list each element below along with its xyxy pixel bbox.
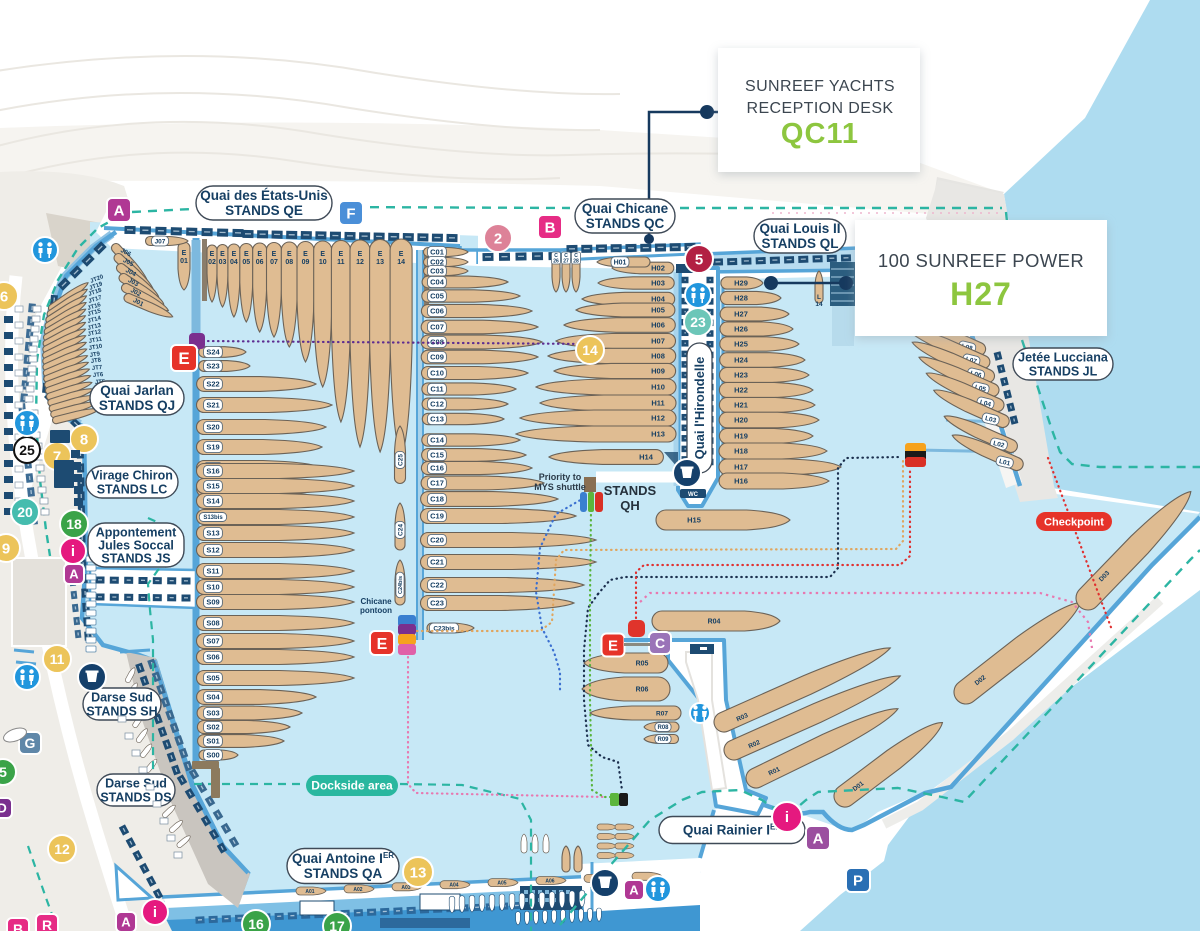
svg-text:A: A (69, 567, 79, 582)
svg-text:S07: S07 (206, 637, 219, 646)
svg-text:08: 08 (285, 259, 293, 266)
svg-text:06: 06 (256, 259, 264, 266)
svg-text:14: 14 (815, 301, 823, 308)
svg-text:A: A (813, 830, 824, 847)
svg-text:S08: S08 (206, 619, 219, 628)
svg-text:14: 14 (397, 259, 405, 266)
svg-text:Quai l'Hirondelle: Quai l'Hirondelle (692, 357, 707, 460)
svg-text:S00: S00 (206, 751, 219, 760)
svg-text:26: 26 (553, 259, 559, 265)
svg-text:Quai Antoine IER: Quai Antoine IER (292, 851, 394, 866)
svg-text:S16: S16 (206, 467, 219, 476)
svg-text:STANDS QC: STANDS QC (586, 216, 665, 231)
svg-text:H19: H19 (734, 432, 748, 441)
svg-text:Quai Chicane: Quai Chicane (582, 201, 669, 216)
svg-text:E: E (358, 251, 363, 258)
svg-text:S20: S20 (206, 423, 219, 432)
svg-text:i: i (785, 809, 789, 826)
svg-text:H06: H06 (651, 321, 665, 330)
svg-text:C20: C20 (430, 536, 444, 545)
svg-text:9: 9 (2, 540, 10, 557)
svg-text:Quai Rainier IER: Quai Rainier IER (683, 823, 781, 838)
svg-text:R08: R08 (657, 725, 669, 731)
svg-text:E: E (320, 251, 325, 258)
svg-text:S21: S21 (206, 401, 219, 410)
svg-text:C04: C04 (430, 278, 445, 287)
svg-text:100 SUNREEF POWER: 100 SUNREEF POWER (878, 250, 1084, 271)
svg-text:MYS shuttle: MYS shuttle (534, 482, 586, 492)
svg-text:SUNREEF YACHTS: SUNREEF YACHTS (745, 78, 895, 95)
svg-text:S09: S09 (206, 598, 219, 607)
svg-text:C24: C24 (397, 524, 404, 536)
svg-text:Virage Chiron: Virage Chiron (91, 468, 173, 482)
svg-text:R06: R06 (636, 687, 649, 694)
svg-text:JT6: JT6 (93, 372, 104, 379)
svg-text:C12: C12 (430, 400, 444, 409)
svg-text:H22: H22 (734, 386, 748, 395)
svg-text:pontoon: pontoon (360, 606, 392, 615)
svg-text:C16: C16 (430, 464, 444, 473)
svg-text:18: 18 (66, 516, 82, 532)
svg-text:S01: S01 (206, 737, 219, 746)
svg-text:A05: A05 (497, 881, 506, 887)
svg-text:C11: C11 (430, 385, 443, 394)
svg-text:E: E (182, 250, 187, 257)
svg-text:C06: C06 (430, 307, 444, 316)
svg-text:A02: A02 (353, 887, 362, 893)
svg-text:STANDS JL: STANDS JL (1029, 364, 1098, 378)
svg-text:R04: R04 (708, 619, 721, 626)
svg-text:H25: H25 (734, 340, 748, 349)
svg-text:C05: C05 (430, 292, 444, 301)
svg-text:S05: S05 (206, 674, 219, 683)
svg-text:Jules Soccal: Jules Soccal (98, 538, 174, 552)
svg-text:E: E (608, 637, 618, 654)
svg-text:11: 11 (337, 259, 345, 266)
svg-text:C23: C23 (430, 599, 444, 608)
svg-text:STANDS QJ: STANDS QJ (99, 398, 175, 413)
svg-text:S19: S19 (206, 443, 219, 452)
svg-text:S23: S23 (206, 362, 219, 371)
svg-text:D: D (0, 801, 7, 816)
svg-text:B: B (13, 921, 23, 931)
svg-text:E: E (339, 251, 344, 258)
svg-text:P: P (853, 872, 863, 889)
svg-text:04: 04 (230, 259, 238, 266)
svg-text:5: 5 (0, 764, 7, 780)
svg-text:A03: A03 (401, 885, 410, 891)
svg-text:12: 12 (356, 259, 364, 266)
svg-text:H17: H17 (734, 463, 748, 472)
svg-text:02: 02 (208, 259, 216, 266)
svg-text:S24: S24 (206, 348, 220, 357)
svg-text:H13: H13 (651, 430, 665, 439)
svg-text:C15: C15 (430, 451, 444, 460)
svg-text:09: 09 (302, 259, 310, 266)
svg-text:H27: H27 (950, 276, 1012, 312)
svg-text:Chicane: Chicane (360, 597, 392, 606)
svg-text:G: G (25, 735, 36, 751)
svg-text:12: 12 (54, 841, 70, 857)
svg-text:E: E (378, 251, 383, 258)
svg-text:A01: A01 (305, 889, 314, 895)
svg-text:i: i (71, 543, 75, 560)
svg-text:H04: H04 (651, 295, 666, 304)
svg-text:Quai des États-Unis: Quai des États-Unis (200, 188, 328, 203)
svg-text:14: 14 (582, 342, 598, 358)
svg-text:C22: C22 (430, 581, 444, 590)
svg-text:STANDS QA: STANDS QA (304, 866, 383, 881)
svg-text:H27: H27 (734, 310, 748, 319)
svg-text:JT7: JT7 (92, 365, 104, 372)
svg-text:STANDS QE: STANDS QE (225, 203, 303, 218)
svg-text:11: 11 (50, 651, 65, 667)
svg-text:16: 16 (248, 916, 264, 931)
svg-text:H26: H26 (734, 325, 748, 334)
svg-text:C19: C19 (430, 512, 444, 521)
svg-text:QH: QH (620, 498, 640, 513)
svg-text:S22: S22 (206, 380, 219, 389)
svg-text:E: E (377, 636, 388, 653)
svg-text:Darse Sud: Darse Sud (105, 776, 167, 790)
svg-text:S06: S06 (206, 653, 219, 662)
svg-text:23: 23 (690, 314, 706, 330)
svg-text:Jetée Lucciana: Jetée Lucciana (1018, 350, 1109, 364)
svg-text:R: R (42, 917, 52, 931)
svg-text:S12: S12 (206, 546, 219, 555)
svg-text:STANDS LC: STANDS LC (97, 482, 168, 496)
svg-text:H09: H09 (651, 367, 665, 376)
svg-text:C21: C21 (430, 558, 444, 567)
svg-text:E: E (220, 251, 225, 258)
svg-text:H24: H24 (734, 356, 749, 365)
svg-text:C: C (655, 635, 665, 651)
svg-text:5: 5 (695, 251, 703, 268)
svg-text:Checkpoint: Checkpoint (1044, 517, 1104, 529)
svg-text:8: 8 (80, 431, 88, 448)
svg-text:S13: S13 (206, 529, 219, 538)
svg-text:R09: R09 (657, 737, 669, 743)
svg-text:13: 13 (376, 259, 384, 266)
svg-text:28: 28 (573, 259, 579, 265)
svg-text:A06: A06 (545, 879, 554, 885)
svg-text:Priority to: Priority to (539, 472, 582, 482)
svg-text:10: 10 (319, 259, 327, 266)
svg-text:S03: S03 (206, 709, 219, 718)
svg-text:E: E (257, 251, 262, 258)
svg-text:Quai Jarlan: Quai Jarlan (100, 383, 174, 398)
svg-text:H29: H29 (734, 279, 748, 288)
svg-text:J07: J07 (155, 238, 166, 245)
svg-text:S11: S11 (207, 567, 220, 576)
svg-text:Appontement: Appontement (96, 525, 177, 539)
svg-text:i: i (153, 904, 157, 921)
svg-text:C03: C03 (430, 267, 444, 276)
svg-text:H15: H15 (687, 516, 701, 525)
svg-text:S10: S10 (206, 583, 219, 592)
svg-text:C07: C07 (430, 323, 444, 332)
svg-text:E: E (232, 251, 237, 258)
svg-text:H23: H23 (734, 371, 748, 380)
svg-text:H03: H03 (651, 279, 665, 288)
svg-text:H08: H08 (651, 352, 665, 361)
svg-text:C13: C13 (430, 415, 444, 424)
svg-text:RECEPTION DESK: RECEPTION DESK (747, 100, 894, 117)
svg-text:A04: A04 (449, 883, 458, 889)
svg-text:H18: H18 (734, 447, 748, 456)
svg-text:E: E (303, 251, 308, 258)
svg-text:S15: S15 (206, 482, 219, 491)
svg-text:20: 20 (17, 504, 33, 520)
svg-text:STANDS: STANDS (604, 483, 657, 498)
svg-text:H07: H07 (651, 337, 665, 346)
svg-text:C14: C14 (430, 436, 445, 445)
svg-text:H02: H02 (651, 264, 665, 273)
svg-text:A: A (114, 202, 125, 219)
svg-text:S02: S02 (206, 723, 219, 732)
svg-text:H20: H20 (734, 416, 748, 425)
svg-text:03: 03 (219, 259, 227, 266)
svg-text:C24bis: C24bis (398, 576, 404, 594)
svg-text:C09: C09 (430, 353, 444, 362)
svg-text:STANDS JS: STANDS JS (101, 551, 170, 565)
svg-text:S04: S04 (206, 693, 220, 702)
svg-text:S14: S14 (206, 497, 220, 506)
svg-text:H16: H16 (734, 477, 748, 486)
svg-text:E: E (272, 251, 277, 258)
svg-text:H10: H10 (651, 383, 665, 392)
svg-text:R05: R05 (636, 661, 649, 668)
svg-text:27: 27 (563, 259, 569, 265)
svg-text:E: E (287, 251, 292, 258)
svg-text:Darse Sud: Darse Sud (91, 690, 153, 704)
svg-text:E: E (244, 251, 249, 258)
svg-text:C18: C18 (430, 495, 444, 504)
svg-text:25: 25 (19, 442, 35, 458)
svg-text:H21: H21 (734, 401, 748, 410)
svg-text:E: E (178, 349, 189, 368)
svg-text:H11: H11 (651, 399, 664, 408)
svg-text:6: 6 (0, 288, 8, 305)
svg-text:C17: C17 (430, 479, 444, 488)
svg-text:17: 17 (329, 918, 345, 931)
svg-text:A: A (121, 915, 131, 930)
svg-text:E: E (399, 251, 404, 258)
svg-text:QC11: QC11 (781, 118, 859, 150)
svg-text:C10: C10 (430, 369, 444, 378)
svg-text:B: B (545, 219, 556, 236)
svg-text:C25: C25 (397, 454, 404, 466)
svg-text:13: 13 (410, 864, 427, 881)
svg-text:C01: C01 (430, 248, 444, 257)
svg-text:E: E (210, 251, 215, 258)
svg-text:Dockside area: Dockside area (311, 779, 393, 793)
svg-text:S13bis: S13bis (203, 515, 223, 521)
svg-text:H12: H12 (651, 414, 665, 423)
svg-text:F: F (346, 205, 355, 222)
svg-text:2: 2 (494, 230, 502, 247)
svg-text:H05: H05 (651, 306, 665, 315)
svg-text:05: 05 (242, 259, 250, 266)
svg-text:H14: H14 (639, 453, 654, 462)
svg-text:R07: R07 (656, 710, 668, 717)
svg-text:07: 07 (270, 259, 278, 266)
svg-text:Quai Louis II: Quai Louis II (759, 221, 840, 236)
svg-text:WC: WC (688, 492, 699, 498)
svg-text:A: A (629, 883, 639, 898)
svg-text:L: L (817, 294, 821, 301)
svg-text:H01: H01 (614, 260, 627, 267)
svg-text:01: 01 (180, 258, 188, 265)
svg-text:STANDS QL: STANDS QL (762, 236, 839, 251)
svg-text:H28: H28 (734, 294, 748, 303)
